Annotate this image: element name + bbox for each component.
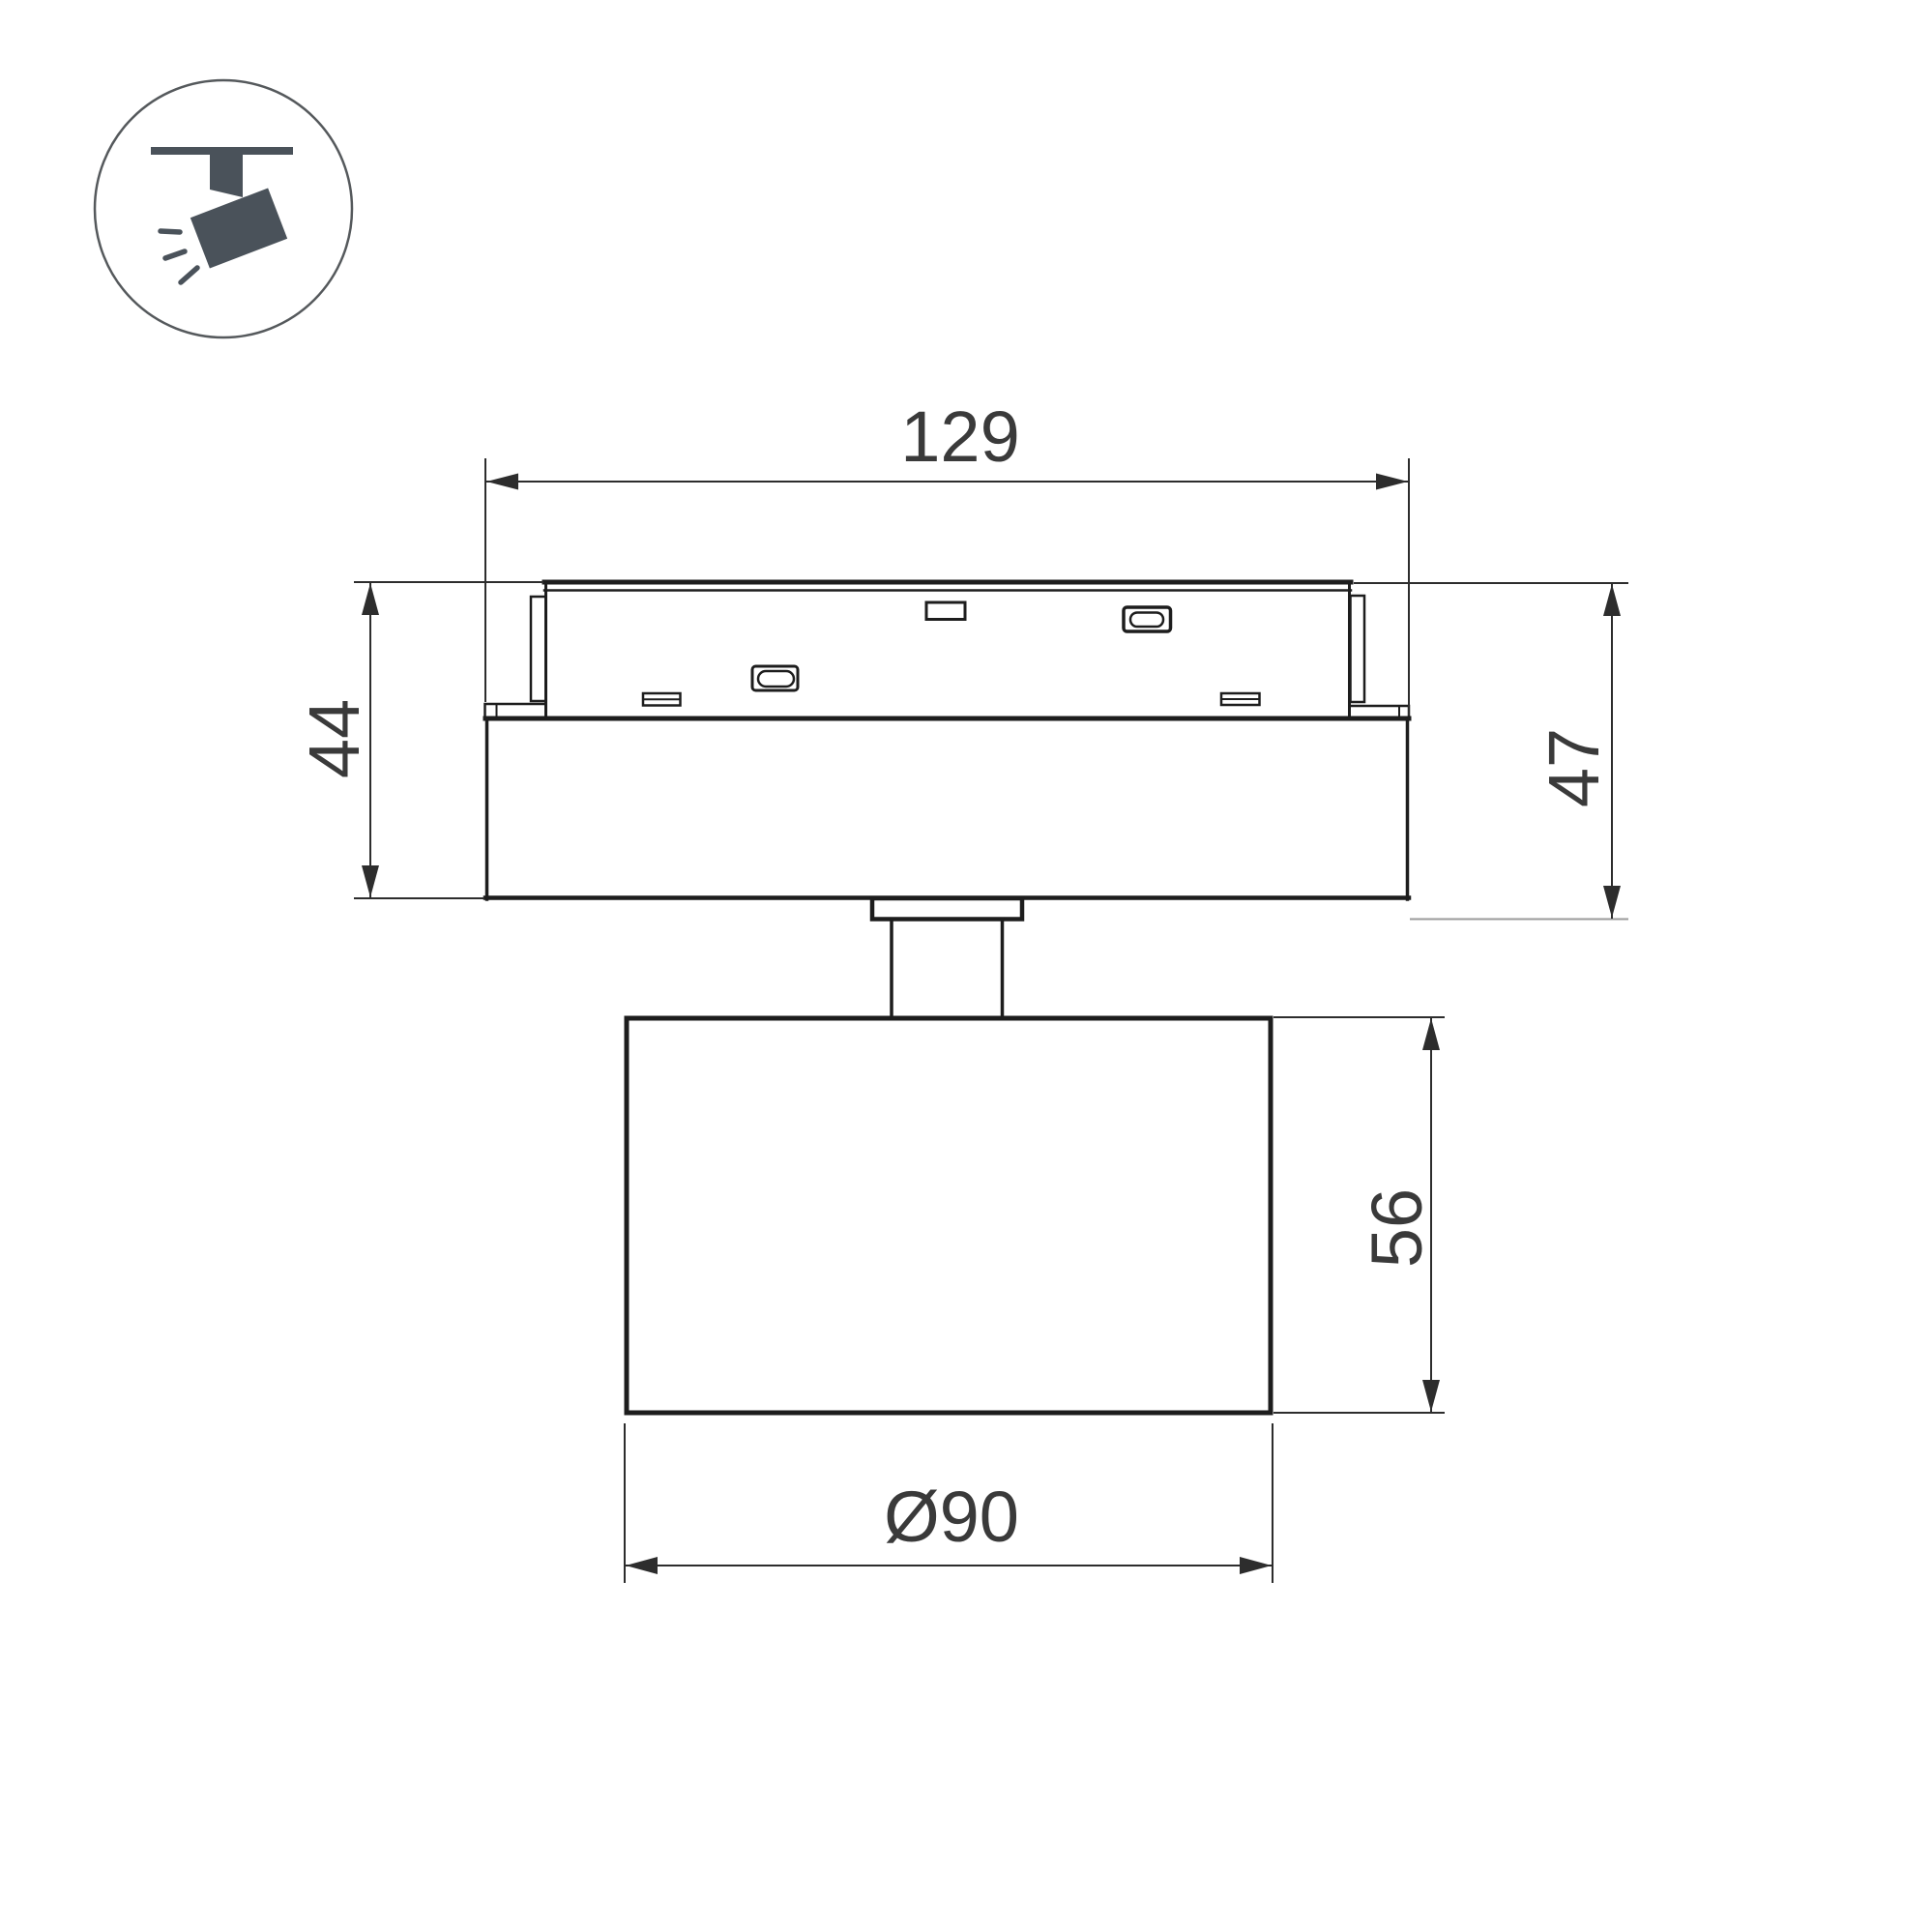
adapter-right-tab — [1351, 596, 1365, 702]
mount-type-icon — [95, 80, 352, 337]
light-ray-icon — [161, 231, 180, 232]
track-adapter — [531, 582, 1364, 717]
arrowhead-right — [1240, 1557, 1272, 1574]
dimension-head-diameter: Ø90 — [625, 1423, 1273, 1583]
dimension-label-head-diameter: Ø90 — [884, 1477, 1019, 1557]
arrowhead-right — [1376, 474, 1408, 490]
adapter-left-tab — [531, 597, 546, 701]
contact-left — [643, 693, 681, 706]
pivot-stem — [872, 898, 1022, 1017]
arrowhead-left — [626, 1557, 658, 1574]
arrowhead-top — [1603, 584, 1621, 616]
lamp-head — [627, 1018, 1271, 1413]
dimension-label-head-height: 56 — [1357, 1188, 1437, 1268]
dimension-label-track-width: 129 — [900, 396, 1019, 477]
dimension-head-height: 56 — [1273, 1017, 1445, 1413]
dimension-track-width: 129 — [485, 396, 1409, 716]
dimension-adapter-height: 44 — [294, 582, 543, 898]
dimension-label-adapter-height: 44 — [294, 699, 374, 778]
dimension-overall-height: 47 — [1354, 583, 1628, 920]
lamp-head-body — [627, 1018, 1271, 1413]
technical-drawing-canvas: 129 44 47 56 Ø90 — [0, 0, 1932, 1932]
latch-button-left — [752, 666, 798, 690]
arrowhead-top — [362, 583, 379, 615]
dimension-label-overall-height: 47 — [1534, 728, 1614, 807]
contact-right — [1221, 693, 1260, 705]
fixture-drawing — [485, 582, 1410, 1413]
latch-button-left-oval — [758, 671, 794, 687]
adapter-base — [485, 704, 1410, 899]
arrowhead-bottom — [1422, 1380, 1440, 1412]
arrowhead-bottom — [362, 865, 379, 897]
latch-button-right — [1124, 607, 1171, 631]
arrowhead-bottom — [1603, 886, 1621, 918]
arrowhead-top — [1422, 1018, 1440, 1050]
latch-button-right-oval — [1130, 613, 1163, 628]
track-bar-icon — [151, 147, 293, 155]
arrowhead-left — [486, 474, 518, 490]
stem-flange — [872, 898, 1022, 920]
vent-slot — [926, 602, 965, 620]
drawing-page: 129 44 47 56 Ø90 — [0, 0, 1932, 1932]
